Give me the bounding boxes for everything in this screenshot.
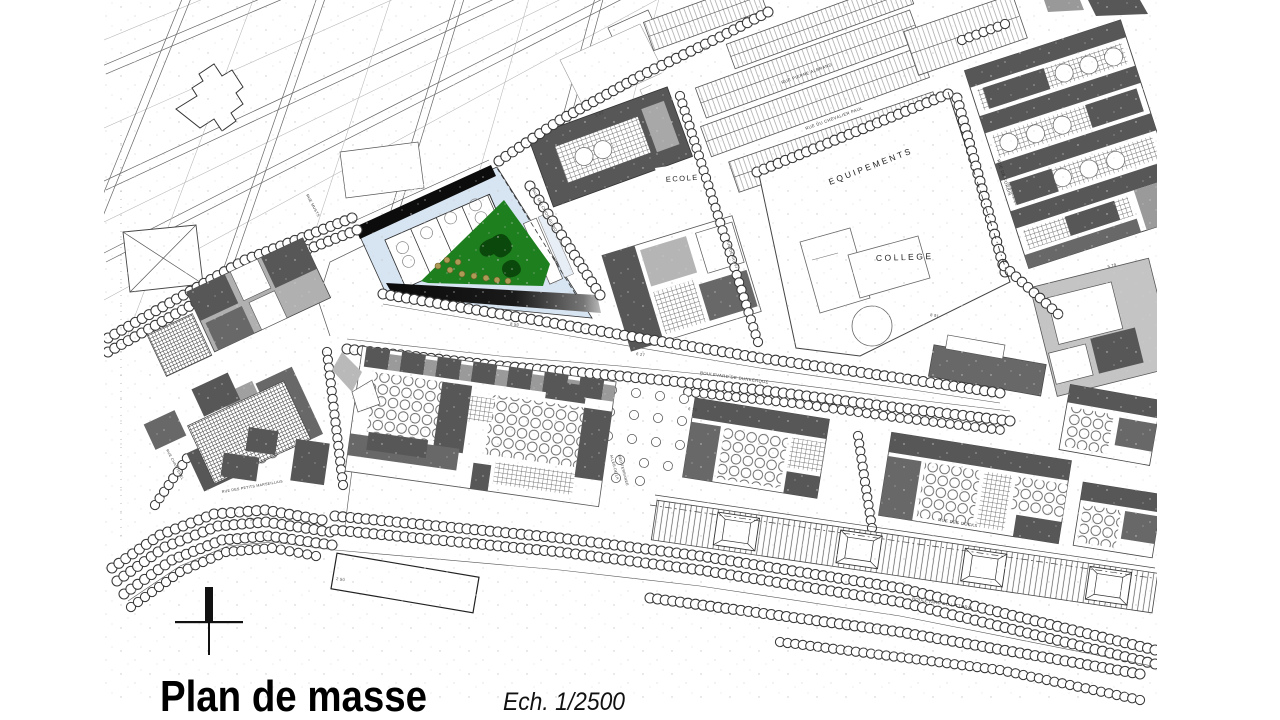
svg-text:Ech. 1/2500: Ech. 1/2500 bbox=[503, 688, 625, 716]
svg-text:Plan de masse: Plan de masse bbox=[160, 672, 427, 720]
